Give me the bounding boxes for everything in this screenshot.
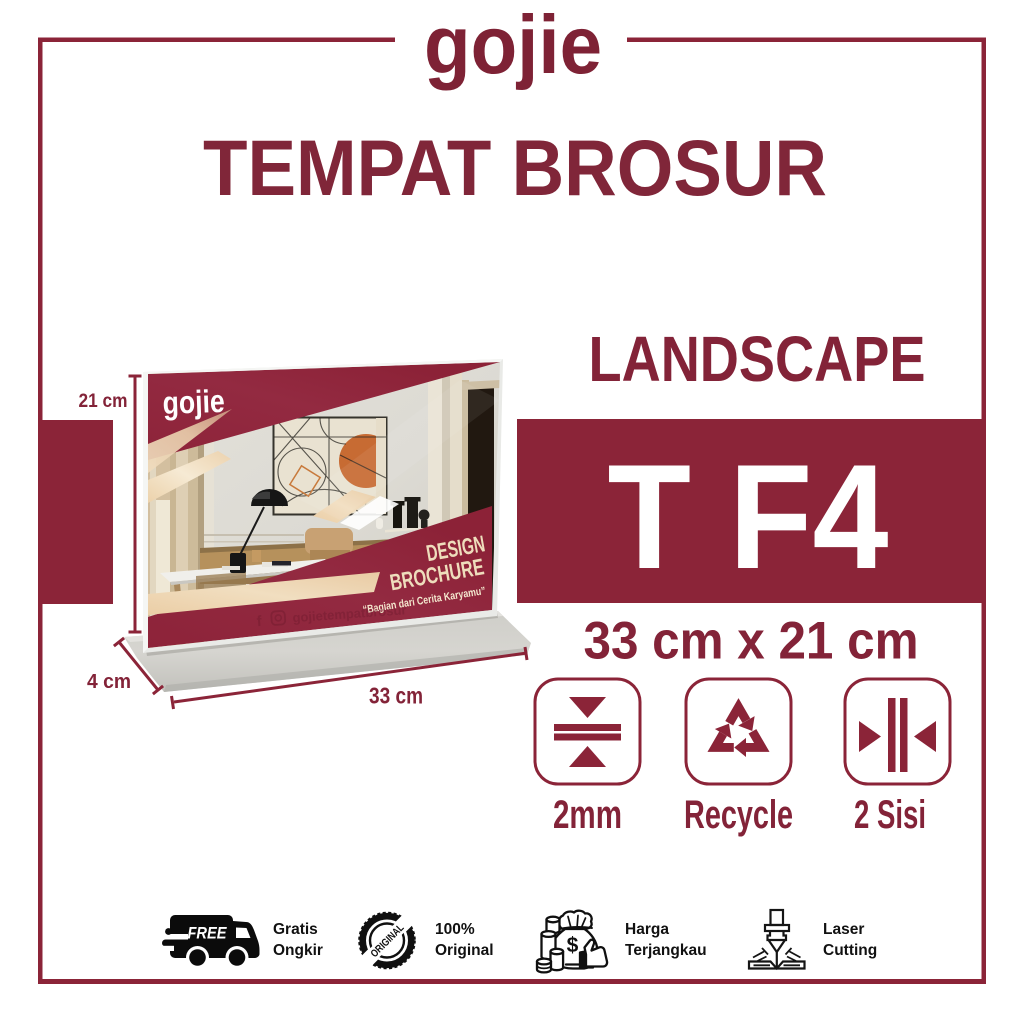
svg-text:FREE: FREE [188,925,228,943]
svg-text:Recycle: Recycle [684,793,793,837]
svg-text:100%: 100% [435,921,475,938]
svg-text:gojie: gojie [424,0,602,91]
svg-text:T F4: T F4 [608,433,889,600]
svg-text:Laser: Laser [823,921,864,938]
svg-text:33 cm x 21 cm: 33 cm x 21 cm [584,612,919,671]
svg-text:21 cm: 21 cm [79,390,128,412]
svg-text:4 cm: 4 cm [87,671,131,693]
svg-text:33 cm: 33 cm [369,683,423,709]
svg-text:2 Sisi: 2 Sisi [854,793,926,837]
svg-text:Cutting: Cutting [823,942,877,959]
svg-text:Terjangkau: Terjangkau [625,942,707,959]
svg-text:Gratis: Gratis [273,921,318,938]
svg-text:Harga: Harga [625,921,669,938]
svg-text:$: $ [567,934,579,957]
svg-text:LANDSCAPE: LANDSCAPE [589,323,926,395]
svg-text:Original: Original [435,942,494,959]
svg-text:gojie: gojie [162,383,225,421]
svg-text:2mm: 2mm [553,793,622,837]
svg-text:TEMPAT BROSUR: TEMPAT BROSUR [203,123,827,212]
svg-text:Ongkir: Ongkir [273,942,323,959]
